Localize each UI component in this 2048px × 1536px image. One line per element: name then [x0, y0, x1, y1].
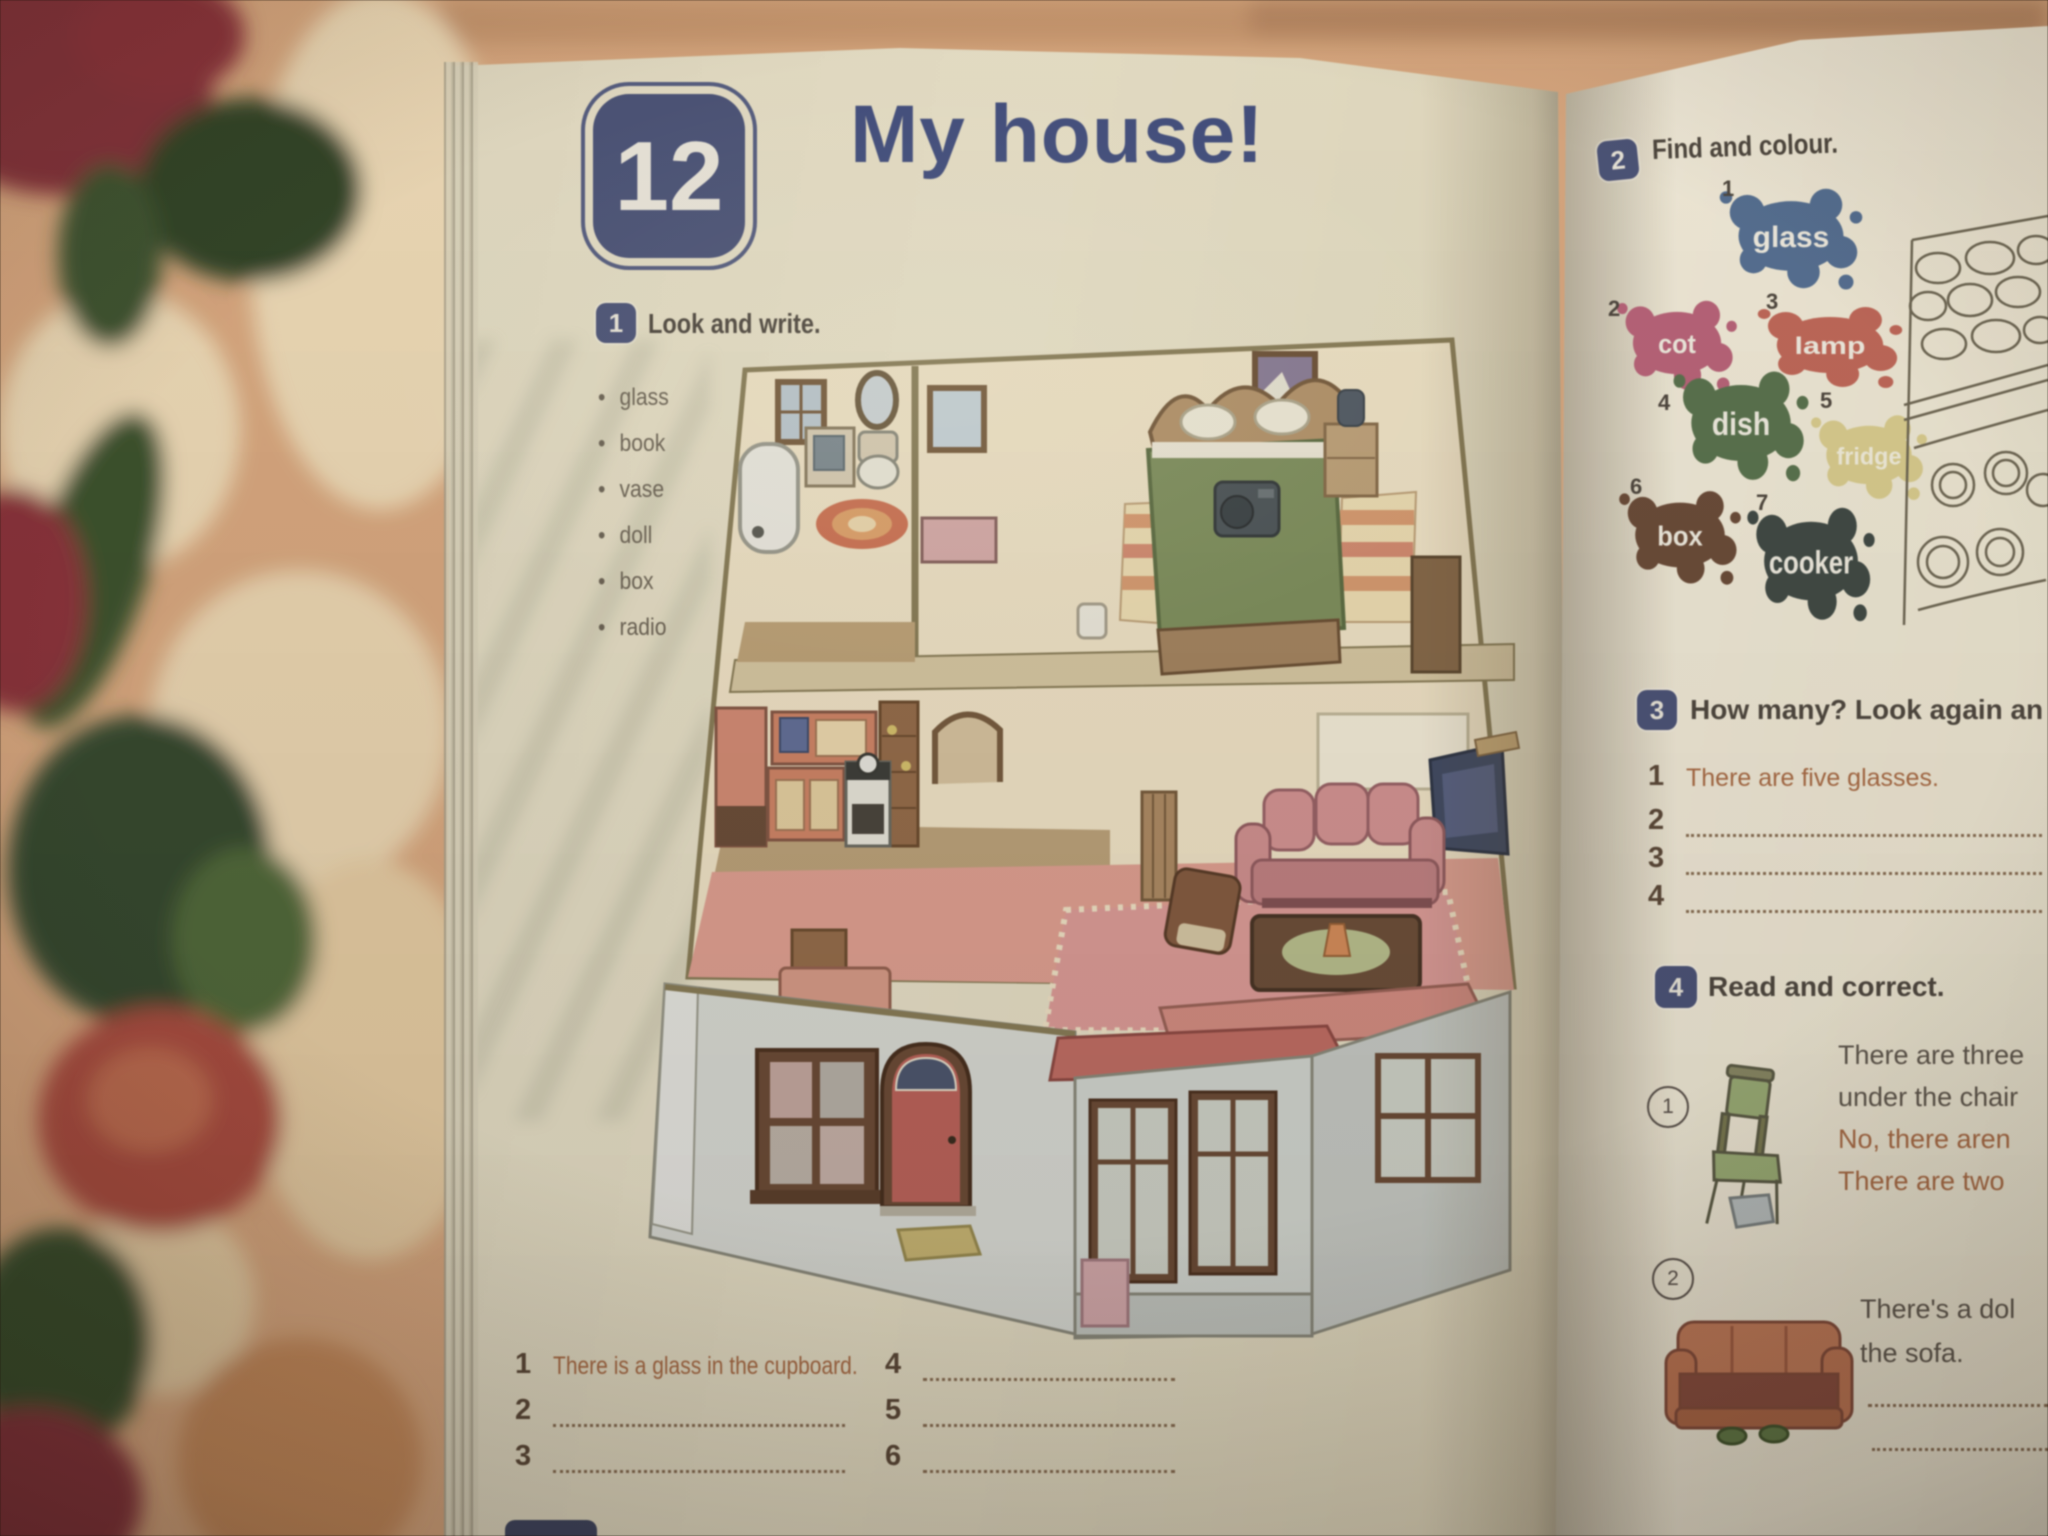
splat-number: 2 — [1608, 296, 1620, 322]
exercise2-instruction: Find and colour. — [1651, 128, 1838, 166]
doormat — [898, 1226, 980, 1260]
answer-row: 6 — [885, 1440, 1175, 1473]
answer-blank-line[interactable] — [923, 1398, 1175, 1427]
answer-number: 4 — [885, 1348, 909, 1381]
armchair — [1163, 867, 1242, 955]
bay-window-right — [1190, 1092, 1276, 1274]
item2-text-line: There's a dol — [1860, 1294, 2015, 1325]
svg-text:lamp: lamp — [1795, 332, 1866, 359]
splat-number: 3 — [1766, 289, 1778, 315]
item1-number-circle: 1 — [1647, 1086, 1689, 1128]
page-footer-tab — [505, 1520, 597, 1536]
splat-glass[interactable]: glass — [1716, 180, 1866, 292]
answer-row: 4 — [885, 1348, 1175, 1381]
item1-answer-line: There are two — [1838, 1166, 2005, 1197]
exercise3-row: 1 There are five glasses. — [1648, 760, 1939, 793]
cooker — [846, 754, 890, 846]
arch-doorway — [935, 714, 1000, 784]
spine-shadow — [1420, 60, 1570, 1536]
page-edges-stack — [444, 62, 478, 1536]
answer-number: 3 — [515, 1440, 539, 1473]
page-title: My house! — [850, 88, 1264, 182]
house-cutaway-illustration — [630, 332, 1530, 1342]
splat-number: 6 — [1630, 474, 1642, 500]
answer-text: There is a glass in the cupboard. — [553, 1352, 858, 1381]
svg-text:cooker: cooker — [1769, 546, 1853, 581]
exercise3-instruction: How many? Look again an — [1690, 694, 2043, 726]
house-exterior — [650, 984, 1510, 1338]
answer-blank-line[interactable] — [1686, 808, 2042, 837]
splat-dish[interactable]: dish — [1670, 362, 1812, 484]
splat-number: 7 — [1756, 490, 1768, 516]
pink-box — [1082, 1260, 1128, 1326]
exercise3-row: 3 — [1648, 842, 2042, 875]
splat-number: 5 — [1820, 388, 1832, 414]
answer-blank-line[interactable] — [1686, 884, 2042, 913]
exercise3-badge: 3 — [1637, 690, 1677, 730]
answer-blank-line[interactable] — [923, 1444, 1175, 1473]
item2-number-circle: 2 — [1652, 1258, 1694, 1300]
row-number: 3 — [1648, 842, 1672, 875]
svg-text:fridge: fridge — [1837, 444, 1902, 470]
answer-number: 2 — [515, 1394, 539, 1427]
unit-number-badge: 12 — [593, 94, 745, 258]
photo-of-workbook: 12 My house! 1 Look and write. glass boo… — [0, 0, 2048, 1536]
svg-text:glass: glass — [1753, 221, 1830, 254]
svg-text:dish: dish — [1712, 406, 1770, 442]
row-number: 2 — [1648, 804, 1672, 837]
sofa-illustration — [1662, 1312, 1857, 1452]
answer-blank-line[interactable] — [1868, 1378, 2048, 1407]
answer-row: 2 — [515, 1394, 845, 1427]
green-chair-illustration — [1688, 1060, 1808, 1235]
svg-text:box: box — [1657, 520, 1703, 551]
example-answer: There are five glasses. — [1686, 764, 1939, 793]
answer-blank-line[interactable] — [923, 1352, 1175, 1381]
answer-number: 5 — [885, 1394, 909, 1427]
bay-window-left — [1090, 1100, 1176, 1282]
nightstand — [1325, 424, 1377, 496]
row-number: 1 — [1648, 760, 1672, 793]
splat-cooker[interactable]: cooker — [1744, 498, 1878, 624]
item1-text-line: under the chair — [1838, 1082, 2018, 1113]
bed-blanket — [1148, 440, 1344, 638]
front-window-left — [750, 1050, 884, 1204]
photo-layer: 12 My house! 1 Look and write. glass boo… — [0, 0, 2048, 1536]
front-door — [880, 1044, 976, 1216]
colouring-picture[interactable] — [1898, 180, 2048, 625]
answer-row: 1 There is a glass in the cupboard. — [515, 1348, 916, 1381]
answer-blank-line[interactable] — [553, 1398, 845, 1427]
answer-row: 3 — [515, 1440, 845, 1473]
exercise4-instruction: Read and correct. — [1708, 971, 1945, 1003]
answer-blank-line[interactable] — [1686, 846, 2042, 875]
row-number: 4 — [1648, 880, 1672, 913]
answer-number: 6 — [885, 1440, 909, 1473]
svg-text:cot: cot — [1658, 330, 1696, 359]
answer-number: 1 — [515, 1348, 539, 1381]
splat-number: 1 — [1722, 176, 1734, 202]
answer-blank-line[interactable] — [553, 1444, 845, 1473]
exercise3-row: 4 — [1648, 880, 2042, 913]
exercise3-row: 2 — [1648, 804, 2042, 837]
exercise4-badge: 4 — [1655, 966, 1697, 1008]
answer-blank-line[interactable] — [1872, 1422, 2048, 1451]
exercise2-badge: 2 — [1596, 138, 1640, 182]
item1-answer-line: No, there aren — [1838, 1124, 2011, 1155]
splat-number: 4 — [1658, 390, 1670, 416]
item2-text-line: the sofa. — [1860, 1338, 1964, 1369]
radio-on-bed — [1215, 482, 1279, 536]
item1-text-line: There are three — [1838, 1040, 2024, 1071]
answer-row: 5 — [885, 1394, 1175, 1427]
